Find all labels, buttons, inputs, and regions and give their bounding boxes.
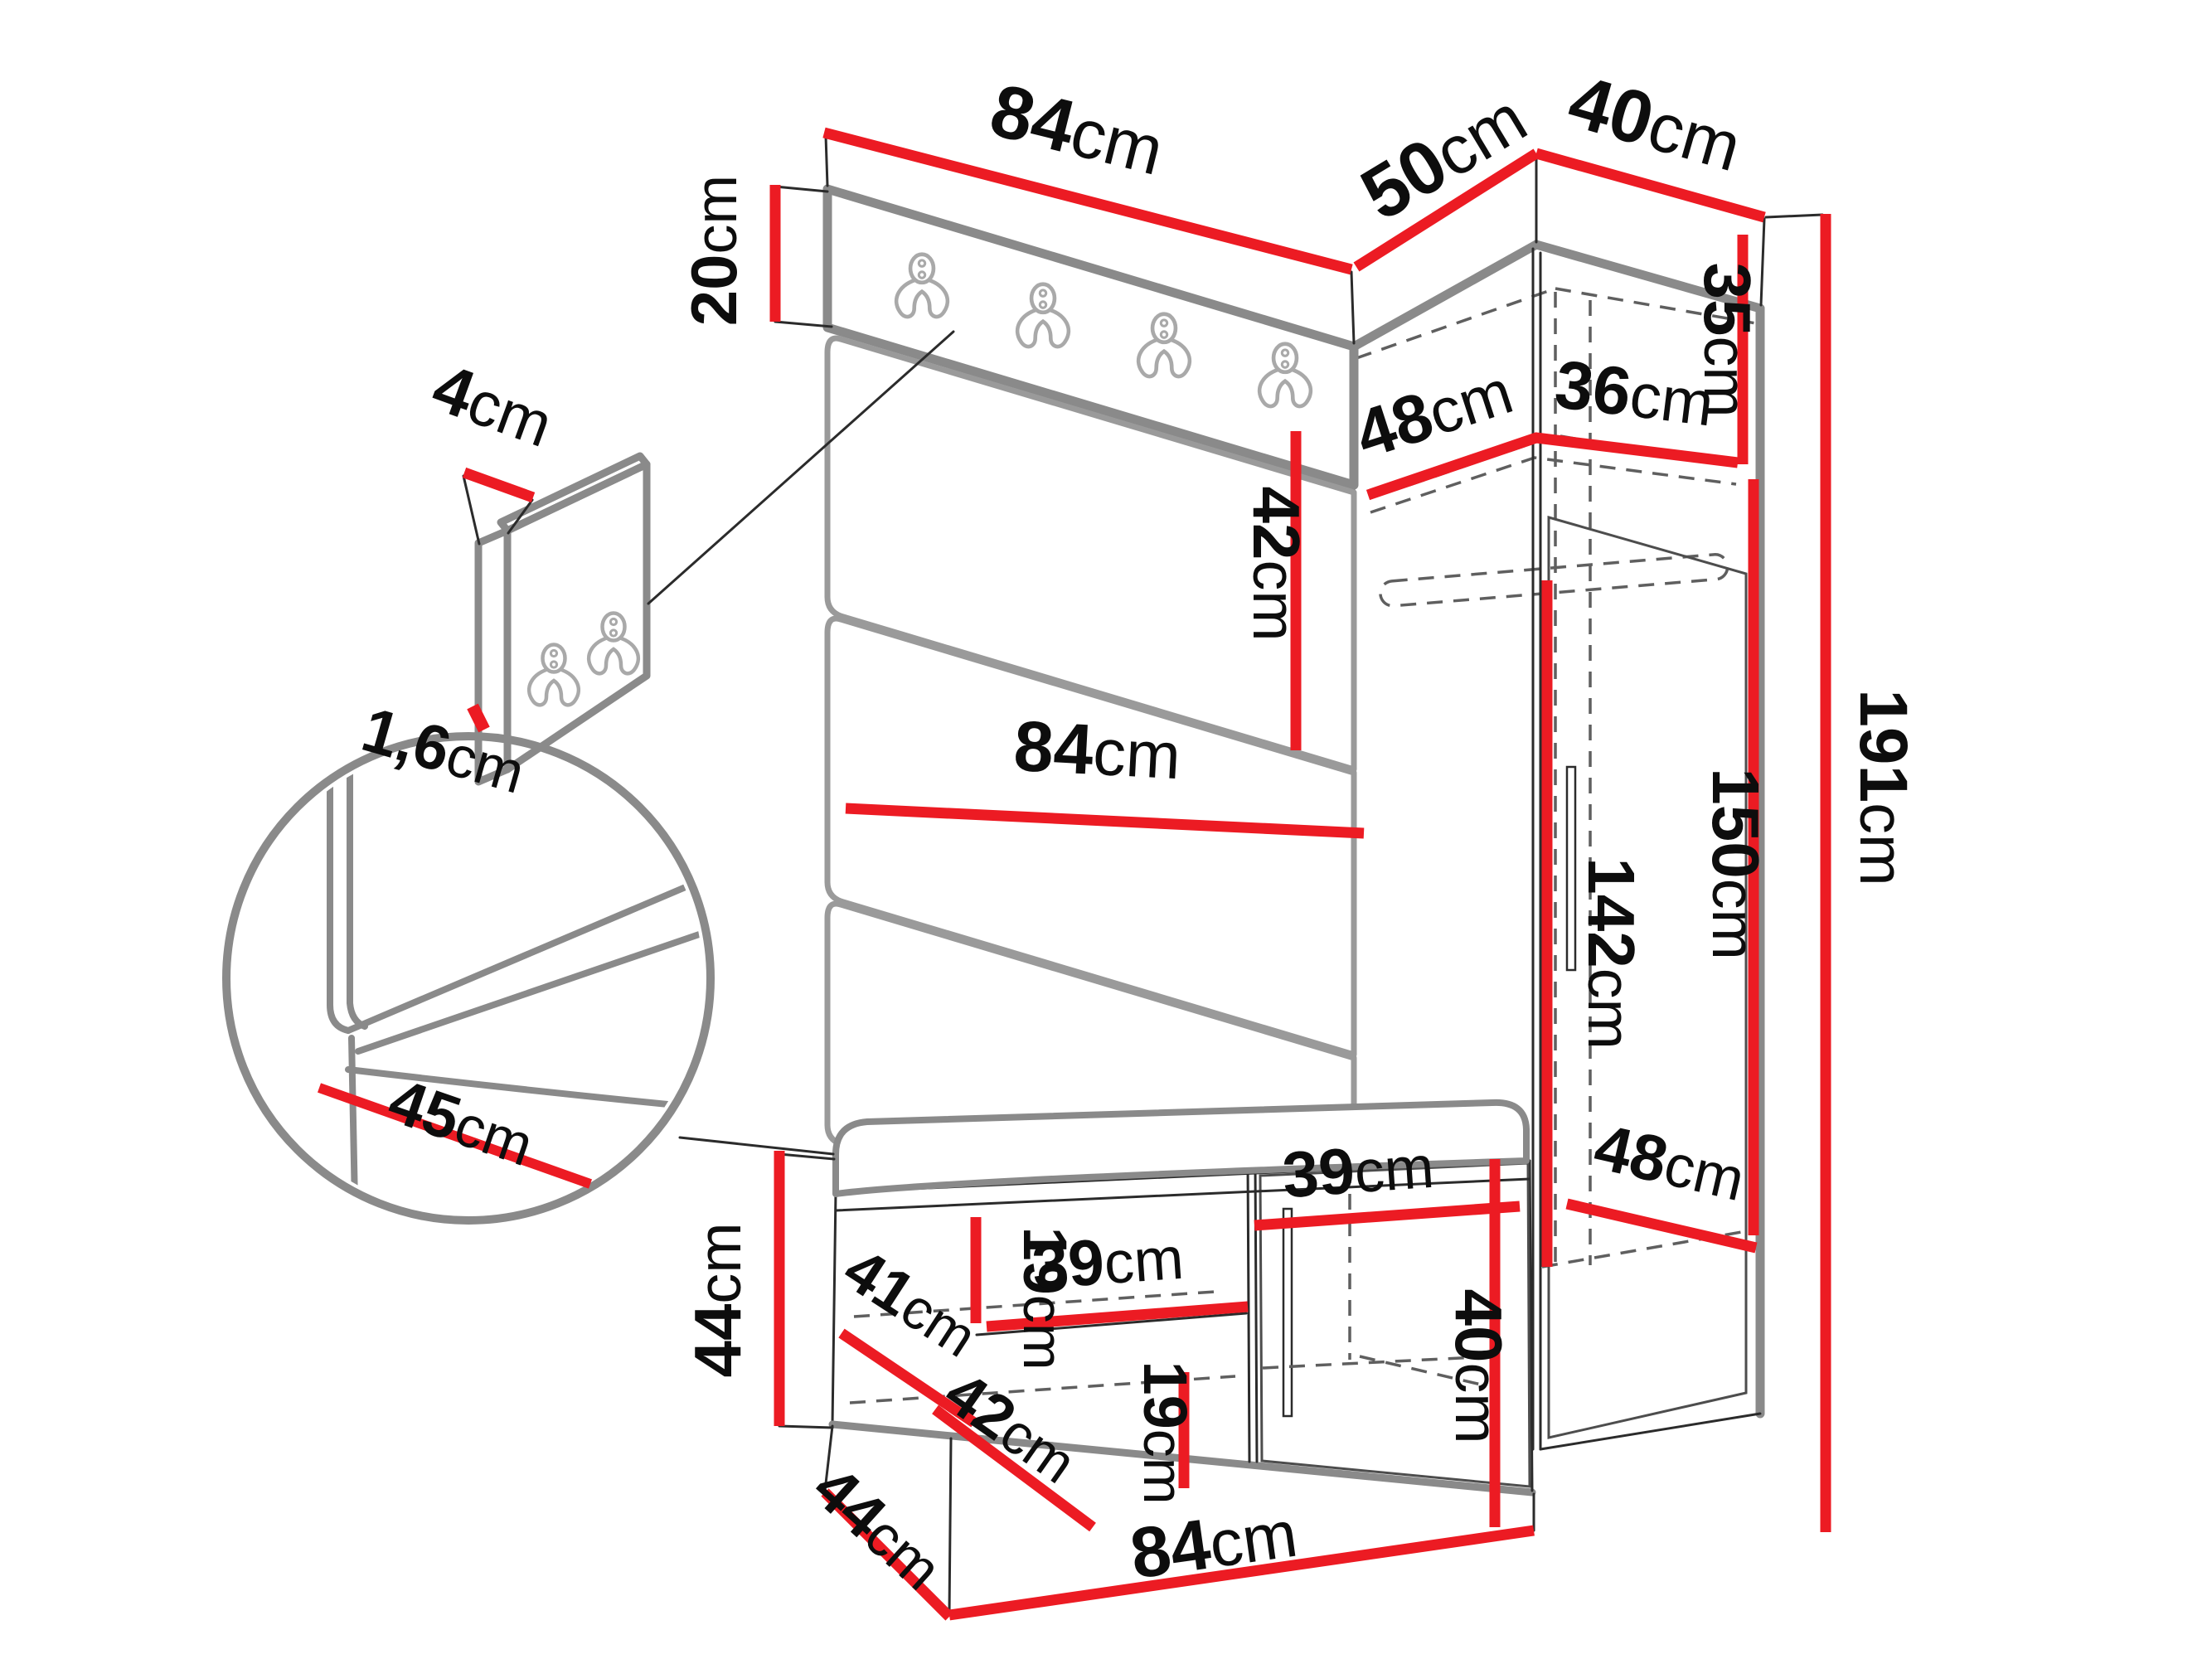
label-39-shelf: 39cm: [1030, 1220, 1186, 1303]
label-20: 20cm: [677, 175, 750, 326]
label-84-mid: 84cm: [1012, 706, 1183, 794]
label-191: 191cm: [1846, 689, 1921, 885]
detail-seat-top-edge: [348, 877, 709, 1031]
label-35: 35cm: [1691, 262, 1764, 417]
label-4: 4cm: [423, 349, 562, 462]
label-40-door: 40cm: [1442, 1288, 1516, 1443]
extension-lines-44: [779, 1154, 834, 1428]
label-44-bottom: 44cm: [800, 1453, 957, 1603]
label-84-top: 84cm: [982, 69, 1171, 192]
label-150: 150cm: [1699, 768, 1773, 960]
dim-line-1-6: [473, 706, 484, 730]
diagram-canvas: 84cm 50cm 40cm 20cm 4cm 1,6cm 42cm 84cm …: [0, 0, 2212, 1659]
label-44-left: 44cm: [681, 1222, 754, 1377]
label-39-door: 39cm: [1280, 1128, 1436, 1212]
detail-corner-edge: [701, 1108, 705, 1186]
extension-line: [463, 476, 479, 544]
leader-line-detail-circle: [680, 1138, 833, 1154]
detail-left-lower-edge: [352, 1038, 355, 1204]
label-142: 142cm: [1574, 857, 1648, 1050]
label-84-bottom: 84cm: [1126, 1492, 1302, 1594]
label-19-lower: 19cm: [1131, 1361, 1200, 1504]
dim-line-4: [464, 473, 533, 497]
furniture-dimension-diagram: 84cm 50cm 40cm 20cm 4cm 1,6cm 42cm 84cm …: [0, 0, 2212, 1659]
detail-panel-edge-2: [350, 740, 365, 1026]
label-42: 42cm: [1239, 486, 1313, 641]
